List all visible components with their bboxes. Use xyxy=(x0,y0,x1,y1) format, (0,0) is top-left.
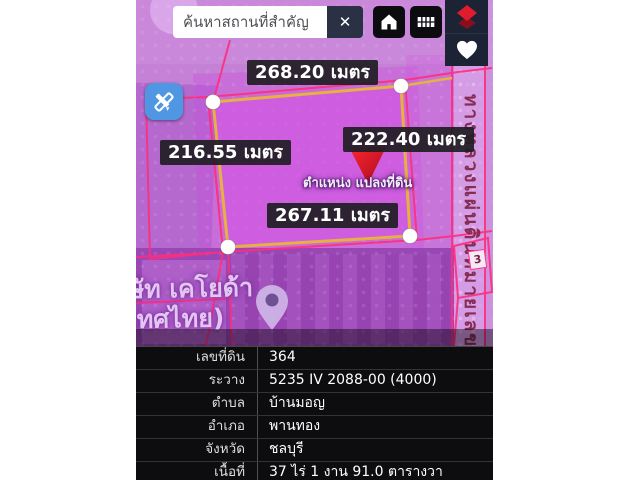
table-row: อำเภอพานทอง xyxy=(136,416,493,439)
row-label: อำเภอ xyxy=(136,416,258,438)
vertex-top-left xyxy=(206,95,221,110)
home-icon xyxy=(379,12,399,32)
map-grid-button[interactable] xyxy=(410,6,442,38)
land-survey-app-window: ทางหลวงแผ่นดินหมายเลข ษัท เคโยด้า เทศไทย… xyxy=(136,0,493,480)
row-label: ระวาง xyxy=(136,370,258,392)
search-clear-button[interactable]: ✕ xyxy=(327,6,363,38)
measurement-right: 222.40 เมตร xyxy=(343,127,474,152)
favorites-button[interactable] xyxy=(445,33,488,67)
table-row: เนื้อที่37 ไร่ 1 งาน 91.0 ตารางวา xyxy=(136,462,493,480)
row-value: บ้านมอญ xyxy=(258,393,493,415)
place-pin-icon xyxy=(256,285,288,330)
row-label: ตำบล xyxy=(136,393,258,415)
table-row: จังหวัดชลบุรี xyxy=(136,439,493,462)
layers-icon xyxy=(455,3,479,29)
parcel-number-badge: 3 xyxy=(468,249,487,270)
layers-button[interactable] xyxy=(445,0,488,33)
vertex-bottom-left xyxy=(221,240,236,255)
obscured-table-row xyxy=(136,329,493,346)
row-value: ชลบุรี xyxy=(258,439,493,461)
row-value: 37 ไร่ 1 งาน 91.0 ตารางวา xyxy=(258,462,493,480)
grid-icon xyxy=(416,12,436,32)
vertex-top-right xyxy=(394,79,409,94)
map-canvas[interactable]: ทางหลวงแผ่นดินหมายเลข ษัท เคโยด้า เทศไทย… xyxy=(136,0,493,346)
table-row: ตำบลบ้านมอญ xyxy=(136,393,493,416)
search-bar: ✕ xyxy=(173,6,363,38)
row-label: เนื้อที่ xyxy=(136,462,258,480)
plot-position-label: ตำแหน่ง แปลงที่ดิน xyxy=(303,172,412,193)
company-place-label-line1: ษัท เคโยด้า xyxy=(136,273,253,305)
measure-tools-button[interactable] xyxy=(145,83,183,120)
row-value: 364 xyxy=(258,347,493,369)
search-input[interactable] xyxy=(173,6,327,38)
parcel-info-table: เลขที่ดิน364 ระวาง5235 IV 2088-00 (4000)… xyxy=(136,346,493,480)
measurement-top: 268.20 เมตร xyxy=(247,60,378,85)
heart-icon xyxy=(456,40,478,60)
row-label: จังหวัด xyxy=(136,439,258,461)
pencil-ruler-icon xyxy=(152,90,176,114)
close-icon: ✕ xyxy=(339,13,352,31)
row-value: พานทอง xyxy=(258,416,493,438)
row-label: เลขที่ดิน xyxy=(136,347,258,369)
measurement-left: 216.55 เมตร xyxy=(160,140,291,165)
measurement-bottom: 267.11 เมตร xyxy=(267,203,398,228)
row-value: 5235 IV 2088-00 (4000) xyxy=(258,370,493,392)
home-button[interactable] xyxy=(373,6,405,38)
map-side-panel xyxy=(445,0,488,66)
table-row: ระวาง5235 IV 2088-00 (4000) xyxy=(136,370,493,393)
table-row: เลขที่ดิน364 xyxy=(136,347,493,370)
vertex-bottom-right xyxy=(403,229,418,244)
company-place-label: ษัท เคโยด้า เทศไทย) xyxy=(136,273,254,335)
